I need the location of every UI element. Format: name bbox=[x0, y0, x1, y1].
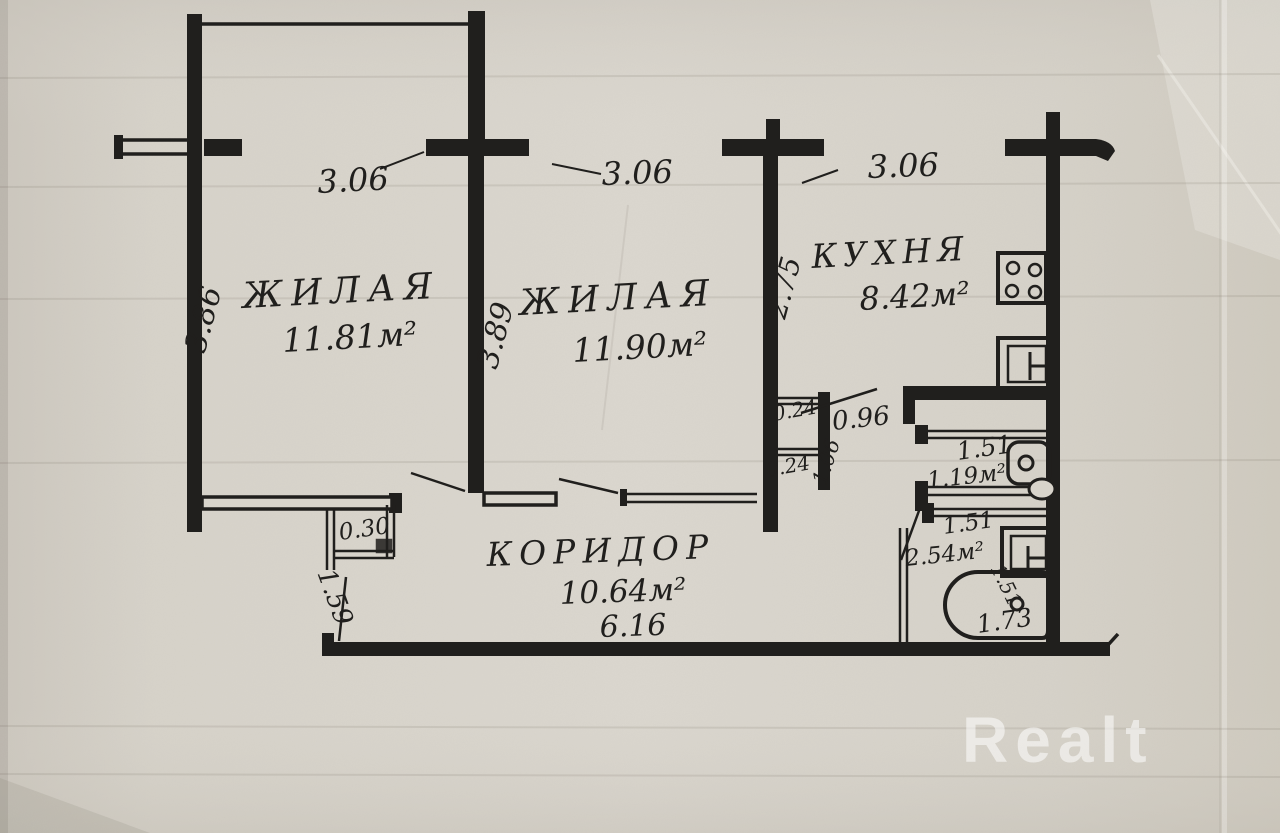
dim-kitchen-width: 3.06 bbox=[867, 146, 940, 186]
floor-plan-drawing: 3.06 3.06 3.06 ЖИЛАЯ 11.81м² 3.86 ЖИЛАЯ … bbox=[0, 0, 1280, 833]
dim-room1-width: 3.06 bbox=[316, 159, 389, 201]
corridor-name: КОРИДОР bbox=[485, 527, 716, 574]
dim-lobby-width: 0.96 bbox=[831, 401, 892, 437]
room2-area: 11.90м² bbox=[571, 324, 708, 370]
dim-corridor-length: 6.16 bbox=[599, 608, 667, 645]
floor-plan-scan: 3.06 3.06 3.06 ЖИЛАЯ 11.81м² 3.86 ЖИЛАЯ … bbox=[0, 0, 1280, 833]
kitchen-name: КУХНЯ bbox=[809, 229, 970, 276]
room1-area: 11.81м² bbox=[281, 314, 418, 360]
dim-room2-width: 3.06 bbox=[601, 153, 674, 193]
kitchen-area: 8.42м² bbox=[858, 274, 970, 318]
realt-watermark: Realt bbox=[962, 704, 1154, 776]
corridor-area: 10.64м² bbox=[559, 572, 687, 612]
